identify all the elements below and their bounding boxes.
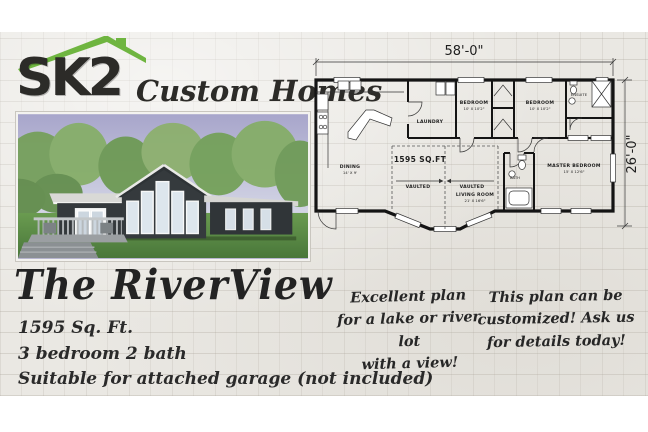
house-rendering xyxy=(16,112,310,261)
dining-dims: 14' X 9' xyxy=(343,170,357,175)
plan-height-label: 26'-0" xyxy=(625,134,638,173)
laundry-label: LAUNDRY xyxy=(417,119,444,125)
house-rendering-image xyxy=(18,114,308,259)
bedroom1-dims: 10' X 10'2" xyxy=(464,106,485,111)
note-line: This plan can be xyxy=(475,285,635,310)
brand-name: SK2 xyxy=(16,52,121,104)
bedroom2-dims: 10' X 10'2" xyxy=(530,106,551,111)
note-customize: This plan can be customized! Ask us for … xyxy=(475,285,636,355)
note-line: for details today! xyxy=(476,330,636,355)
vaulted-left-label: VAULTED xyxy=(406,184,431,190)
brand-logo: SK2 Custom Homes xyxy=(14,34,314,118)
floor-plan: 58'-0" 26'-0" xyxy=(308,38,638,243)
bath-label: BATH xyxy=(510,175,520,180)
living-room-dims: 21' X 16'6" xyxy=(465,198,486,203)
note-line: with a view! xyxy=(335,351,486,377)
vaulted-right-label: VAULTED xyxy=(460,184,485,190)
note-line: for a lake or river lot xyxy=(333,307,484,356)
note-line: customized! Ask us xyxy=(476,307,636,332)
master-bedroom-dims: 15' X 12'6" xyxy=(564,169,585,174)
flyer: SK2 Custom Homes xyxy=(0,0,648,432)
plan-title: The RiverView xyxy=(14,260,333,309)
ensuite-label: ENSUITE xyxy=(571,92,588,97)
plan-width-label: 58'-0" xyxy=(444,44,483,59)
sqft-label: 1595 SQ.FT xyxy=(394,155,447,164)
note-lake-lot: Excellent plan for a lake or river lot w… xyxy=(333,284,485,378)
